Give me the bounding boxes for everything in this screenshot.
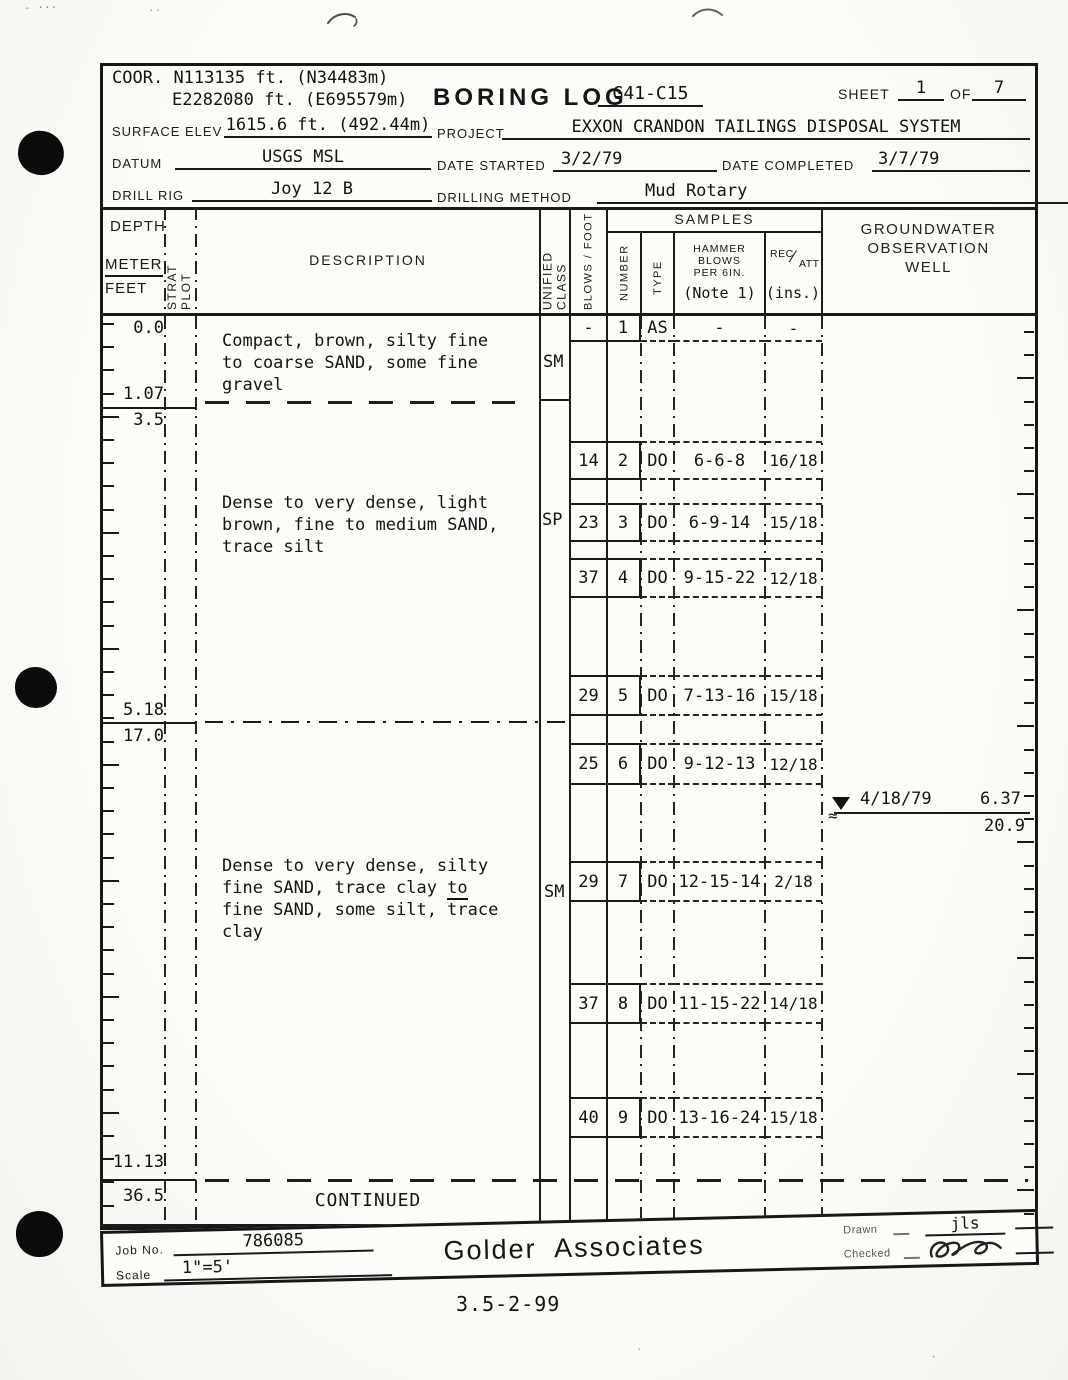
coordinates-line1: COOR. N113135 ft. (N34483m) [112, 68, 388, 88]
depth-ruler-tick-right [1024, 517, 1034, 519]
rec-slash: ⁄ [792, 247, 795, 267]
depth-ruler-tick-left [103, 393, 114, 395]
job-no-label: Job No. [115, 1243, 164, 1258]
depth-ruler-tick-left [103, 578, 114, 580]
depth-ruler-tick-right [1024, 818, 1034, 820]
sample-row: 37 8 DO 11-15-22 14/18 [570, 983, 822, 1024]
number-column-header: NUMBER [609, 236, 640, 310]
sample-number: 8 [607, 983, 641, 1024]
depth-ruler-tick-right [1024, 354, 1034, 356]
depth-ruler-tick-right [1024, 888, 1034, 890]
coordinates-line2: E2282080 ft. (E695579m) [172, 90, 407, 110]
layer-description: Dense to very dense, light brown, fine t… [222, 492, 498, 558]
blows-foot-column-header: BLOWS / FOOT [571, 212, 606, 310]
feet-label: FEET [105, 277, 147, 297]
depth-ruler-tick-right [1024, 401, 1034, 403]
sheet-label: SHEET [838, 86, 890, 102]
depth-ruler-tick-right [1024, 911, 1034, 913]
column-line [673, 231, 675, 313]
hammer-column-header: HAMMER BLOWS PER 6IN. [674, 243, 765, 279]
hammer-note: (Note 1) [674, 284, 765, 302]
depth-ruler-tick-right [1017, 609, 1034, 611]
depth-ruler-tick-left [103, 509, 114, 511]
sample-blows: - [570, 316, 607, 342]
hammer-line1: HAMMER [693, 243, 746, 255]
drawn-line [1015, 1227, 1053, 1230]
att-label: ATT [799, 258, 820, 270]
hammer-line2: BLOWS [698, 255, 741, 267]
sample-row: 40 9 DO 13-16-24 15/18 [570, 1097, 822, 1138]
sample-rec-att: 2/18 [765, 861, 822, 902]
layer-boundary-dash [205, 721, 568, 723]
sample-blows: 37 [570, 983, 607, 1024]
sample-blows: 23 [570, 503, 607, 542]
depth-ruler-tick-left [103, 787, 114, 789]
layer-description: Dense to very dense, silty fine SAND, tr… [222, 855, 498, 943]
unified-class-value: SM [543, 352, 563, 372]
of-label: OF [950, 86, 971, 102]
depth-ruler-tick-left [103, 926, 114, 928]
project-value: EXXON CRANDON TAILINGS DISPOSAL SYSTEM [502, 117, 1030, 140]
depth-boundary-line [100, 722, 196, 724]
unified-class-column-header: UNIFIED CLASS [539, 212, 570, 310]
date-started-label: DATE STARTED [437, 158, 546, 173]
groundwater-level-line [834, 812, 1030, 814]
depth-meters: 0.0 [100, 318, 164, 338]
depth-ruler-tick-left [103, 369, 114, 371]
depth-ruler-tick-right [1024, 934, 1034, 936]
groundwater-level-ft: 20.9 [984, 816, 1025, 836]
drawn-dash [893, 1233, 909, 1235]
depth-ruler-tick-right [1024, 424, 1034, 426]
checked-line [1016, 1252, 1054, 1255]
datum-label: DATUM [112, 156, 162, 171]
unified-class-value: SM [544, 882, 564, 902]
sample-type: DO [641, 743, 674, 785]
depth-ruler-tick-left [103, 648, 119, 650]
sample-row: 29 5 DO 7-13-16 15/18 [570, 675, 822, 716]
sample-hammer-blows: 11-15-22 [674, 983, 765, 1024]
depth-ruler-tick-right [1017, 957, 1034, 959]
depth-boundary-line [100, 407, 196, 409]
project-label: PROJECT [437, 126, 505, 141]
sample-hammer-blows: 6-9-14 [674, 503, 765, 542]
depth-ruler-tick-left [103, 323, 114, 325]
sample-type: DO [641, 441, 674, 480]
depth-ruler-tick-left [103, 1042, 114, 1044]
sample-row: 25 6 DO 9-12-13 12/18 [570, 743, 822, 785]
depth-ruler-tick-left [103, 625, 114, 627]
sample-number: 6 [607, 743, 641, 785]
sample-number: 7 [607, 861, 641, 902]
meter-label: METER [105, 256, 163, 277]
sample-rec-att: 15/18 [765, 1097, 822, 1138]
sample-rec-att: 12/18 [765, 558, 822, 598]
depth-feet: 3.5 [100, 410, 164, 430]
depth-ruler-tick-left [103, 601, 114, 603]
sample-hammer-blows: - [674, 316, 765, 342]
type-column-header: TYPE [643, 246, 673, 310]
scan-artifact [326, 10, 360, 28]
checked-dash [904, 1257, 920, 1259]
column-line [606, 207, 608, 313]
groundwater-level-m: 6.37 [980, 789, 1021, 809]
column-line [539, 207, 541, 313]
depth-ruler-tick-right [1024, 1166, 1034, 1168]
depth-ruler-tick-left [103, 996, 119, 998]
depth-ruler-tick-left [103, 694, 114, 696]
depth-ruler-tick-left [103, 671, 114, 673]
sample-row: 14 2 DO 6-6-8 16/18 [570, 441, 822, 480]
depth-ruler-tick-right [1024, 1120, 1034, 1122]
depth-ruler-tick-left [103, 903, 114, 905]
sample-hammer-blows: 9-15-22 [674, 558, 765, 598]
depth-feet: 36.5 [100, 1186, 164, 1206]
sample-hammer-blows: 12-15-14 [674, 861, 765, 902]
sample-row: 23 3 DO 6-9-14 15/18 [570, 503, 822, 542]
sheet-no-value: 1 [898, 78, 944, 101]
depth-ruler-tick-left [103, 857, 114, 859]
company-name: Golder Associates [443, 1230, 705, 1267]
sample-type: DO [641, 503, 674, 542]
sample-rec-att: - [765, 316, 822, 342]
sample-type: DO [641, 1097, 674, 1138]
sample-type: DO [641, 675, 674, 716]
depth-ruler-tick-left [103, 532, 119, 534]
layer-boundary-dash [205, 401, 515, 404]
sample-type: DO [641, 983, 674, 1024]
hole-punch-middle [15, 667, 57, 708]
scan-artifact: · [636, 1343, 643, 1356]
drill-rig-label: DRILL RIG [112, 188, 184, 203]
drill-rig-value: Joy 12 B [192, 179, 432, 202]
depth-ruler-tick-left [103, 485, 114, 487]
drilling-method-label: DRILLING METHOD [437, 190, 572, 205]
sample-type: DO [641, 861, 674, 902]
sample-hammer-blows: 13-16-24 [674, 1097, 765, 1138]
groundwater-line3: WELL [905, 259, 952, 276]
layer-description: Compact, brown, silty fine to coarse SAN… [222, 330, 488, 396]
depth-ruler-tick-right [1024, 1050, 1034, 1052]
sample-blows: 25 [570, 743, 607, 785]
drawn-label: Drawn [843, 1224, 878, 1237]
scale-value: 1"=5' [164, 1253, 392, 1281]
depth-ruler-tick-right [1024, 749, 1034, 751]
layer-description-post: fine SAND, some silt, trace clay [222, 900, 498, 942]
sample-number: 1 [607, 316, 641, 342]
depth-ruler-tick-right [1024, 1143, 1034, 1145]
depth-ruler-tick-left [103, 880, 119, 882]
unified-class-value: SP [542, 510, 562, 530]
depth-ruler-tick-left [103, 555, 114, 557]
samples-group-header: SAMPLES [607, 211, 822, 227]
groundwater-line2: OBSERVATION [867, 240, 989, 257]
surface-elev-value: 1615.6 ft. (492.44m) [224, 115, 432, 138]
depth-ruler-tick-left [103, 1019, 114, 1021]
sample-blows: 29 [570, 861, 607, 902]
depth-ruler-tick-right [1024, 331, 1034, 333]
sample-blows: 14 [570, 441, 607, 480]
hammer-line3: PER 6IN. [694, 267, 746, 279]
depth-ruler-tick-right [1024, 540, 1034, 542]
depth-ruler-tick-right [1017, 1073, 1034, 1075]
sample-number: 3 [607, 503, 641, 542]
depth-meters: 11.13 [100, 1152, 164, 1172]
depth-ruler-tick-left [103, 1089, 114, 1091]
column-line [164, 207, 166, 313]
depth-ruler-tick-left [103, 973, 114, 975]
depth-ruler-tick-right [1024, 586, 1034, 588]
depth-ruler-tick-right [1017, 725, 1034, 727]
sample-type: AS [641, 316, 674, 342]
depth-ruler-tick-right [1024, 470, 1034, 472]
depth-ruler-tick-left [103, 1181, 114, 1183]
rec-label: REC [770, 248, 794, 260]
depth-ruler-tick-right [1024, 447, 1034, 449]
hole-punch-top [15, 128, 67, 178]
strat-plot-column-header: STRAT PLOT [163, 226, 195, 310]
depth-ruler-tick-left [103, 949, 114, 951]
date-completed-label: DATE COMPLETED [722, 158, 854, 173]
sample-number: 9 [607, 1097, 641, 1138]
description-column-header: DESCRIPTION [196, 252, 540, 268]
depth-ruler-tick-left [103, 416, 119, 418]
depth-boundary-line [100, 1179, 196, 1181]
depth-ruler-tick-right [1024, 1027, 1034, 1029]
scale-label: Scale [116, 1268, 151, 1283]
depth-ruler-tick-left [103, 1112, 119, 1114]
sample-rec-att: 15/18 [765, 675, 822, 716]
groundwater-column-header: GROUNDWATER OBSERVATION WELL [822, 220, 1035, 277]
sample-hammer-blows: 7-13-16 [674, 675, 765, 716]
depth-ruler-tick-right [1024, 633, 1034, 635]
scan-artifact: ·· [148, 4, 161, 17]
sample-row: 29 7 DO 12-15-14 2/18 [570, 861, 822, 902]
depth-column-header: DEPTH [110, 218, 166, 235]
sample-rec-att: 15/18 [765, 503, 822, 542]
date-started-value: 3/2/79 [553, 149, 717, 172]
datum-value: USGS MSL [175, 147, 431, 170]
sample-blows: 29 [570, 675, 607, 716]
depth-units-header: METER FEET [105, 256, 163, 297]
depth-ruler-tick-left [103, 1205, 114, 1207]
job-no-value: 786085 [173, 1229, 373, 1257]
depth-ruler-tick-right [1024, 865, 1034, 867]
depth-ruler-tick-left [103, 462, 114, 464]
surface-elev-label: SURFACE ELEV [112, 124, 222, 139]
page-number: 3.5-2-99 [456, 1292, 560, 1316]
checked-label: Checked [844, 1247, 891, 1260]
column-line [569, 207, 571, 313]
depth-ruler-tick-left [103, 1065, 114, 1067]
groundwater-date: 4/18/79 [860, 789, 932, 809]
scan-artifact [692, 6, 724, 20]
depth-ruler-tick-left [103, 717, 114, 719]
depth-ruler-tick-right [1024, 1004, 1034, 1006]
depth-ruler-tick-left [103, 346, 114, 348]
date-completed-value: 3/7/79 [872, 149, 1030, 172]
column-line [821, 207, 823, 313]
sample-number: 4 [607, 558, 641, 598]
depth-ruler-tick-right [1024, 772, 1034, 774]
depth-ruler-tick-right [1024, 656, 1034, 658]
depth-ruler-tick-right [1024, 679, 1034, 681]
depth-ruler-tick-right [1017, 377, 1034, 379]
sample-blows: 40 [570, 1097, 607, 1138]
depth-ruler-tick-left [103, 764, 119, 766]
sample-row: - 1 AS - - [570, 316, 822, 342]
sample-number: 2 [607, 441, 641, 480]
depth-ruler-tick-right [1024, 1213, 1034, 1215]
column-line [640, 231, 642, 313]
sample-blows: 37 [570, 558, 607, 598]
strat-plot-right-line [195, 316, 197, 1224]
column-line [195, 207, 197, 313]
class-left-line [539, 316, 541, 1224]
boring-id-value: G41-C15 [598, 83, 703, 107]
depth-ruler-tick-left [103, 741, 114, 743]
drilling-method-value: Mud Rotary [597, 181, 1068, 204]
rec-units: (ins.) [764, 284, 822, 302]
depth-ruler-tick-right [1024, 795, 1034, 797]
boring-log-scan: - ··· ·· · · COOR. N113135 ft. (N34483m)… [0, 0, 1068, 1380]
continued-label: CONTINUED [196, 1190, 540, 1211]
scan-artifact: - ··· [24, 1, 57, 14]
depth-ruler-tick-right [1024, 981, 1034, 983]
scan-artifact: · [930, 1350, 937, 1364]
strat-plot-left-line [164, 316, 166, 1224]
depth-ruler-tick-right [1017, 841, 1034, 843]
groundwater-line1: GROUNDWATER [861, 221, 997, 238]
depth-ruler-tick-left [103, 833, 114, 835]
sample-number: 5 [607, 675, 641, 716]
sample-row: 37 4 DO 9-15-22 12/18 [570, 558, 822, 598]
class-divider [539, 399, 571, 401]
sample-rec-att: 14/18 [765, 983, 822, 1024]
depth-ruler-tick-right [1017, 1189, 1034, 1191]
sample-hammer-blows: 9-12-13 [674, 743, 765, 785]
layer-description-underlined: to [447, 878, 467, 900]
sample-type: DO [641, 558, 674, 598]
depth-ruler-tick-left [103, 810, 114, 812]
layer-boundary-dash [205, 1179, 1028, 1182]
depth-ruler-tick-left [103, 439, 114, 441]
depth-ruler-tick-right [1024, 1097, 1034, 1099]
sample-rec-att: 12/18 [765, 743, 822, 785]
depth-ruler-tick-left [103, 1135, 114, 1137]
checked-signature [925, 1233, 1004, 1265]
sample-rec-att: 16/18 [765, 441, 822, 480]
hole-punch-bottom [14, 1209, 66, 1260]
depth-ruler-tick-right [1024, 702, 1034, 704]
sample-hammer-blows: 6-6-8 [674, 441, 765, 480]
depth-feet: 17.0 [100, 726, 164, 746]
approx-symbol: ≈ [828, 806, 838, 825]
sheet-total-value: 7 [972, 78, 1026, 101]
column-line [764, 231, 766, 313]
depth-ruler-tick-right [1017, 493, 1034, 495]
depth-ruler-tick-right [1024, 563, 1034, 565]
depth-ruler-tick-left [103, 1158, 114, 1160]
